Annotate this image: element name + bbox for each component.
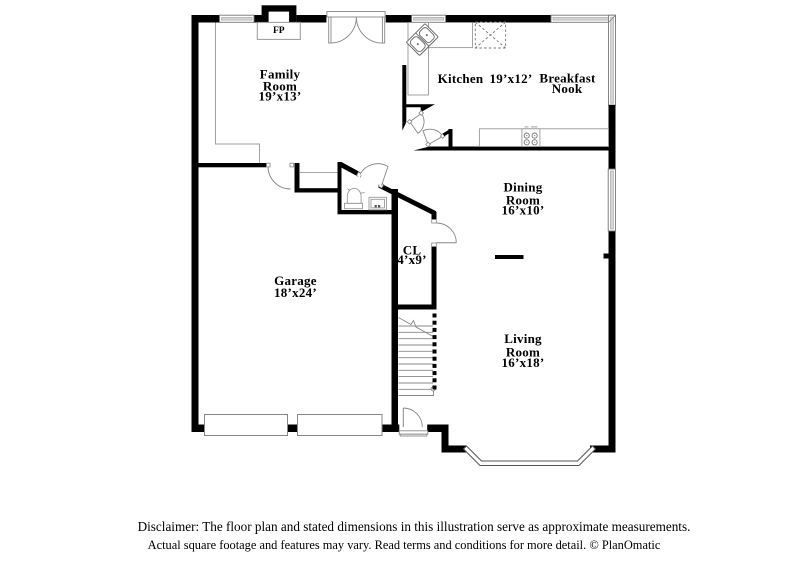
svg-text:19’x13’: 19’x13’ xyxy=(259,89,302,104)
svg-text:Kitchen: Kitchen xyxy=(438,71,484,86)
svg-text:Nook: Nook xyxy=(552,81,583,96)
svg-text:Disclaimer: The floor plan and: Disclaimer: The floor plan and stated di… xyxy=(138,519,691,534)
svg-text:Actual square footage and feat: Actual square footage and features may v… xyxy=(148,538,661,552)
svg-text:16’x18’: 16’x18’ xyxy=(502,355,545,370)
svg-text:18’x24’: 18’x24’ xyxy=(274,285,317,300)
svg-text:FP: FP xyxy=(273,26,285,36)
svg-text:16’x10’: 16’x10’ xyxy=(502,202,545,217)
svg-text:4’x9’: 4’x9’ xyxy=(397,252,426,267)
svg-text:19’x12’: 19’x12’ xyxy=(490,71,533,86)
